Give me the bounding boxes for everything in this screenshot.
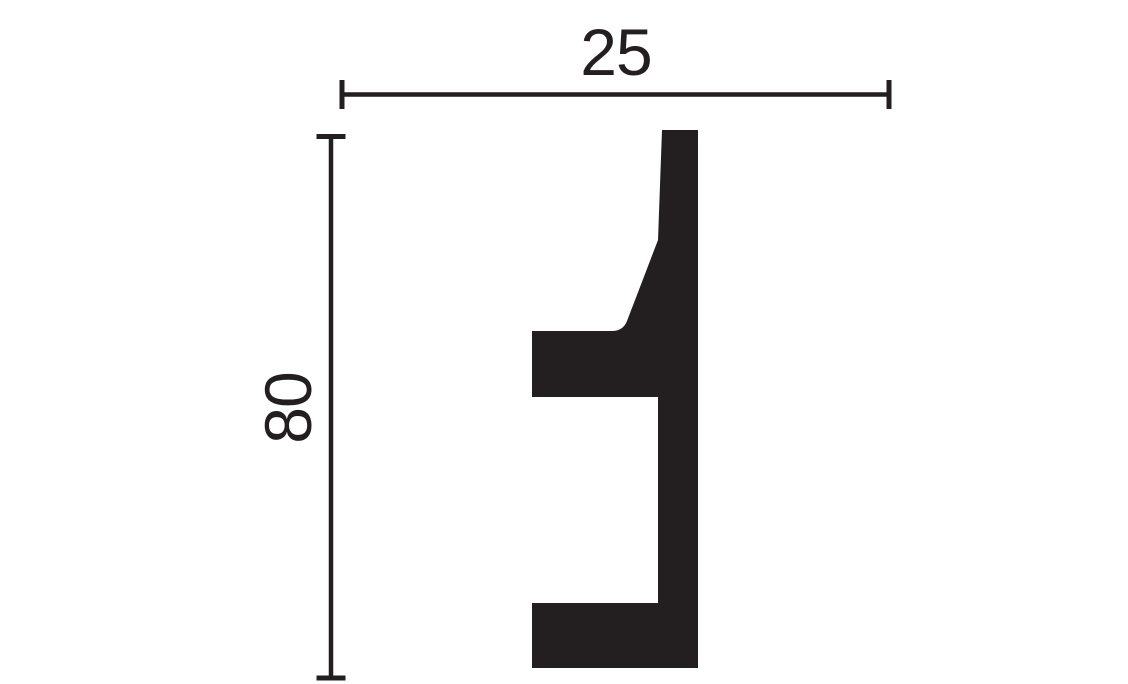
width-dimension-label: 25: [580, 15, 651, 89]
height-dimension: 80: [251, 137, 346, 679]
width-dimension: 25: [342, 15, 889, 109]
height-dimension-label: 80: [251, 372, 325, 443]
profile-diagram-svg: 25 80: [0, 0, 1128, 684]
drawing-canvas: 25 80: [0, 0, 1128, 684]
profile-shape: [532, 130, 698, 668]
